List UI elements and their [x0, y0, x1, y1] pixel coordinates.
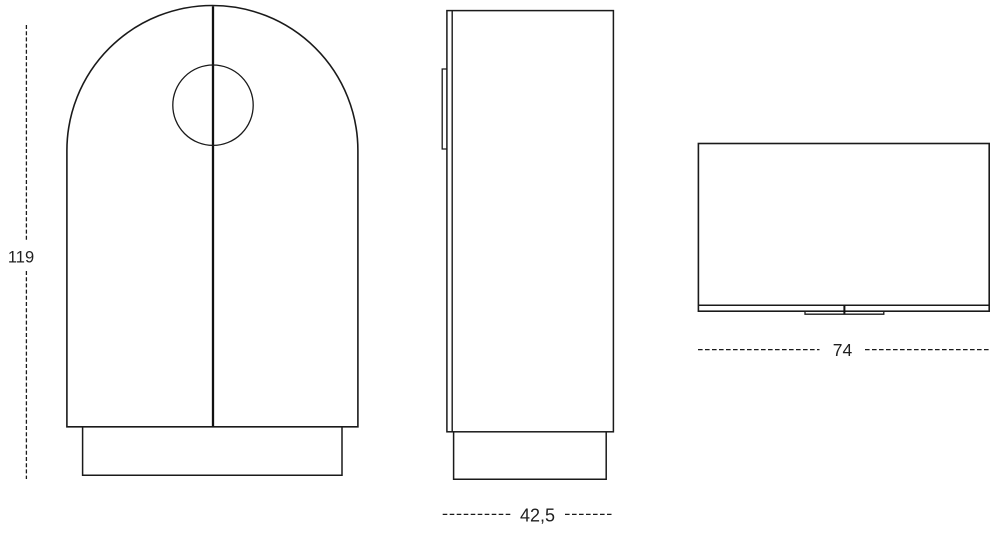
svg-text:42,5: 42,5 — [520, 506, 555, 526]
svg-text:119: 119 — [8, 249, 34, 267]
svg-text:74: 74 — [833, 340, 853, 360]
